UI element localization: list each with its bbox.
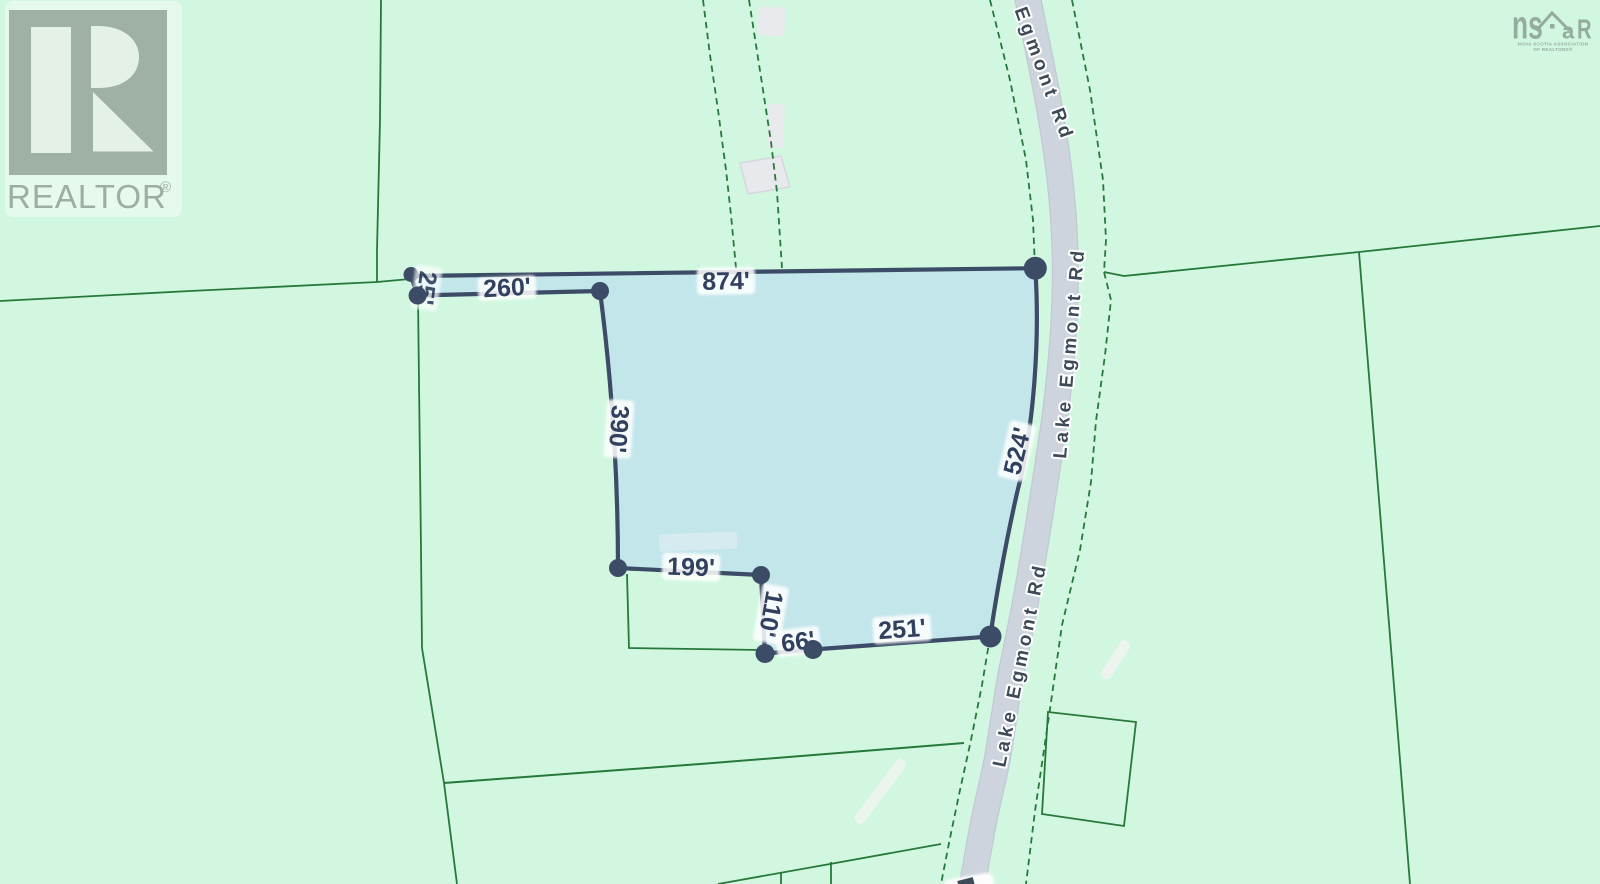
- svg-text:260': 260': [482, 273, 531, 303]
- svg-text:251': 251': [877, 614, 926, 645]
- svg-text:OF REALTORS®: OF REALTORS®: [1533, 46, 1573, 52]
- svg-text:874': 874': [702, 267, 750, 296]
- svg-text:®: ®: [160, 179, 171, 196]
- svg-text:NOVA SCOTIA ASSOCIATION: NOVA SCOTIA ASSOCIATION: [1518, 42, 1589, 47]
- svg-text:390': 390': [603, 404, 634, 453]
- svg-text:REALTOR: REALTOR: [7, 178, 167, 215]
- svg-text:199': 199': [667, 553, 716, 583]
